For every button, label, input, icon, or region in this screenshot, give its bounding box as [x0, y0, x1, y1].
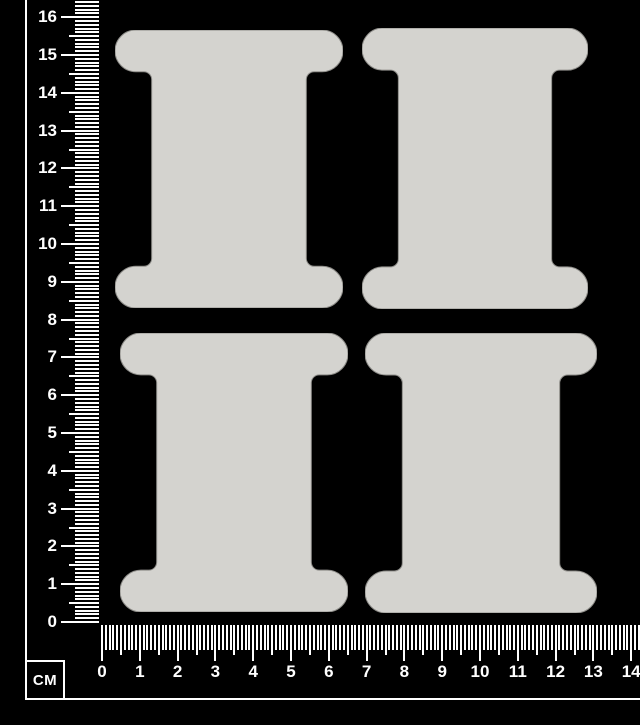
horizontal-ruler-tick	[328, 625, 330, 661]
horizontal-ruler-tick	[400, 625, 402, 650]
horizontal-ruler-tick	[128, 625, 130, 650]
horizontal-ruler-tick	[490, 625, 492, 650]
vertical-ruler-tick	[61, 583, 99, 585]
vertical-ruler-tick	[75, 496, 99, 498]
vertical-ruler-tick	[75, 504, 99, 506]
vertical-ruler-tick	[69, 602, 99, 604]
horizontal-ruler-tick	[320, 625, 322, 650]
horizontal-ruler-tick	[558, 625, 560, 650]
vertical-ruler-number: 15	[26, 45, 57, 65]
vertical-ruler-tick	[75, 137, 99, 139]
vertical-ruler-tick	[75, 141, 99, 143]
vertical-ruler-tick	[75, 273, 99, 275]
vertical-ruler-tick	[75, 81, 99, 83]
vertical-ruler-tick	[75, 266, 99, 268]
horizontal-ruler-tick	[256, 625, 258, 650]
spool-top-left	[115, 30, 343, 308]
frame-bottom-line	[25, 698, 640, 700]
vertical-ruler-tick	[75, 424, 99, 426]
horizontal-ruler-tick	[373, 625, 375, 650]
horizontal-ruler-tick	[585, 625, 587, 650]
vertical-ruler-tick	[75, 387, 99, 389]
vertical-ruler-tick	[75, 561, 99, 563]
vertical-ruler-tick	[75, 613, 99, 615]
vertical-ruler-tick	[75, 115, 99, 117]
vertical-ruler-tick	[75, 341, 99, 343]
vertical-ruler-number: 0	[26, 612, 57, 632]
horizontal-ruler-tick	[623, 625, 625, 650]
vertical-ruler-tick	[75, 122, 99, 124]
vertical-ruler-tick	[75, 557, 99, 559]
vertical-ruler-tick	[75, 9, 99, 11]
vertical-ruler-number: 3	[26, 499, 57, 519]
horizontal-ruler-tick	[245, 625, 247, 650]
horizontal-ruler-tick	[271, 625, 273, 655]
horizontal-ruler-tick	[475, 625, 477, 650]
horizontal-ruler-tick	[188, 625, 190, 650]
vertical-ruler-tick	[75, 591, 99, 593]
vertical-ruler-tick	[75, 553, 99, 555]
vertical-ruler-tick	[75, 296, 99, 298]
vertical-ruler-tick	[75, 251, 99, 253]
vertical-ruler-tick	[69, 186, 99, 188]
vertical-ruler-number: 4	[26, 461, 57, 481]
vertical-ruler-tick	[75, 285, 99, 287]
horizontal-ruler-tick	[143, 625, 145, 650]
horizontal-ruler-tick	[101, 625, 103, 661]
vertical-ruler-tick	[61, 205, 99, 207]
horizontal-ruler-tick	[415, 625, 417, 650]
vertical-ruler-tick	[69, 527, 99, 529]
vertical-ruler-tick	[75, 542, 99, 544]
horizontal-ruler-tick	[517, 625, 519, 661]
vertical-ruler-tick	[75, 417, 99, 419]
vertical-ruler-tick	[75, 62, 99, 64]
vertical-ruler-tick	[75, 99, 99, 101]
horizontal-ruler-tick	[608, 625, 610, 650]
horizontal-ruler-tick	[456, 625, 458, 650]
vertical-ruler-tick	[75, 466, 99, 468]
vertical-ruler-tick	[61, 243, 99, 245]
horizontal-ruler-tick	[551, 625, 553, 650]
horizontal-ruler-tick	[214, 625, 216, 661]
vertical-ruler-tick	[75, 572, 99, 574]
horizontal-ruler-tick	[169, 625, 171, 650]
vertical-ruler-tick	[61, 281, 99, 283]
horizontal-ruler-tick	[369, 625, 371, 650]
spool-silhouette	[362, 28, 588, 309]
horizontal-ruler-tick	[279, 625, 281, 650]
vertical-ruler-tick	[75, 190, 99, 192]
vertical-ruler-tick	[75, 549, 99, 551]
vertical-ruler-tick	[75, 88, 99, 90]
horizontal-ruler-tick	[589, 625, 591, 650]
vertical-ruler-tick	[75, 390, 99, 392]
vertical-ruler-tick	[69, 489, 99, 491]
horizontal-ruler-tick	[577, 625, 579, 650]
horizontal-ruler-tick	[422, 625, 424, 655]
horizontal-ruler-tick	[555, 625, 557, 661]
horizontal-ruler-tick	[332, 625, 334, 650]
vertical-ruler-tick	[75, 254, 99, 256]
horizontal-ruler-tick	[173, 625, 175, 650]
vertical-ruler-tick	[69, 375, 99, 377]
vertical-ruler-tick	[75, 345, 99, 347]
vertical-ruler-tick	[75, 107, 99, 109]
vertical-ruler-tick	[61, 508, 99, 510]
horizontal-ruler-tick	[581, 625, 583, 650]
vertical-ruler-number: 13	[26, 121, 57, 141]
vertical-ruler-tick	[75, 334, 99, 336]
horizontal-ruler-tick	[460, 625, 462, 655]
horizontal-ruler-number: 7	[351, 662, 383, 682]
spool-top-right	[362, 28, 588, 309]
horizontal-ruler-tick	[230, 625, 232, 650]
horizontal-ruler-tick	[630, 625, 632, 661]
vertical-ruler-tick	[75, 84, 99, 86]
vertical-ruler-tick	[75, 209, 99, 211]
vertical-ruler-tick	[75, 322, 99, 324]
horizontal-ruler-tick	[351, 625, 353, 650]
vertical-ruler-tick	[75, 383, 99, 385]
horizontal-ruler-tick	[184, 625, 186, 650]
vertical-ruler-tick	[75, 247, 99, 249]
vertical-ruler-tick	[75, 77, 99, 79]
spool-silhouette	[365, 333, 597, 613]
horizontal-ruler-tick	[570, 625, 572, 650]
vertical-ruler-tick	[75, 349, 99, 351]
horizontal-ruler-tick	[611, 625, 613, 655]
vertical-ruler-tick	[75, 304, 99, 306]
horizontal-ruler-tick	[506, 625, 508, 650]
unit-label-box: CM	[25, 660, 65, 700]
horizontal-ruler-tick	[385, 625, 387, 655]
vertical-ruler-tick	[75, 198, 99, 200]
horizontal-ruler-tick	[487, 625, 489, 650]
unit-label: CM	[33, 672, 57, 689]
horizontal-ruler-tick	[139, 625, 141, 661]
horizontal-ruler-number: 8	[388, 662, 420, 682]
horizontal-ruler-tick	[335, 625, 337, 650]
horizontal-ruler-number: 12	[540, 662, 572, 682]
horizontal-ruler-tick	[313, 625, 315, 650]
vertical-ruler-tick	[75, 175, 99, 177]
vertical-ruler-tick	[75, 406, 99, 408]
vertical-ruler-tick	[75, 69, 99, 71]
horizontal-ruler-tick	[468, 625, 470, 650]
vertical-ruler-tick	[75, 398, 99, 400]
horizontal-ruler-tick	[540, 625, 542, 650]
horizontal-ruler-tick	[196, 625, 198, 655]
vertical-ruler-number: 16	[26, 7, 57, 27]
vertical-ruler-tick	[75, 277, 99, 279]
horizontal-ruler-tick	[207, 625, 209, 650]
horizontal-ruler-tick	[604, 625, 606, 650]
horizontal-ruler-number: 6	[313, 662, 345, 682]
horizontal-ruler-tick	[445, 625, 447, 650]
vertical-ruler-tick	[69, 413, 99, 415]
horizontal-ruler-tick	[362, 625, 364, 650]
vertical-ruler-tick	[75, 12, 99, 14]
horizontal-ruler-tick	[596, 625, 598, 650]
horizontal-ruler-tick	[411, 625, 413, 650]
horizontal-ruler-tick	[513, 625, 515, 650]
horizontal-ruler-number: 5	[275, 662, 307, 682]
horizontal-ruler-tick	[528, 625, 530, 650]
horizontal-ruler-number: 13	[577, 662, 609, 682]
vertical-ruler-tick	[75, 201, 99, 203]
vertical-ruler-tick	[75, 50, 99, 52]
vertical-ruler-tick	[75, 610, 99, 612]
vertical-ruler-tick	[75, 462, 99, 464]
horizontal-ruler-tick	[592, 625, 594, 661]
vertical-ruler-tick	[75, 511, 99, 513]
vertical-ruler-tick	[75, 530, 99, 532]
horizontal-ruler-tick	[532, 625, 534, 650]
vertical-ruler-tick	[75, 217, 99, 219]
horizontal-ruler-tick	[222, 625, 224, 650]
vertical-ruler-tick	[61, 470, 99, 472]
horizontal-ruler-tick	[464, 625, 466, 650]
horizontal-ruler-number: 10	[464, 662, 496, 682]
horizontal-ruler-tick	[366, 625, 368, 661]
vertical-ruler-tick	[61, 319, 99, 321]
horizontal-ruler-tick	[358, 625, 360, 650]
vertical-ruler-tick	[75, 194, 99, 196]
vertical-ruler-tick	[75, 372, 99, 374]
vertical-ruler-tick	[75, 587, 99, 589]
vertical-ruler-number: 11	[26, 196, 57, 216]
vertical-ruler-tick	[75, 379, 99, 381]
horizontal-ruler-tick	[430, 625, 432, 650]
horizontal-ruler-tick	[146, 625, 148, 650]
vertical-ruler-tick	[61, 394, 99, 396]
vertical-ruler-number: 9	[26, 272, 57, 292]
vertical-ruler-number: 12	[26, 158, 57, 178]
horizontal-ruler-tick	[449, 625, 451, 650]
horizontal-ruler-tick	[120, 625, 122, 655]
horizontal-ruler-number: 3	[199, 662, 231, 682]
horizontal-ruler-tick	[600, 625, 602, 650]
vertical-ruler-tick	[75, 579, 99, 581]
spool-silhouette	[120, 333, 348, 612]
vertical-ruler-tick	[75, 239, 99, 241]
horizontal-ruler-tick	[396, 625, 398, 650]
horizontal-ruler-tick	[521, 625, 523, 650]
vertical-ruler-tick	[75, 232, 99, 234]
vertical-ruler-tick	[75, 330, 99, 332]
vertical-ruler-tick	[75, 606, 99, 608]
horizontal-ruler-tick	[294, 625, 296, 650]
horizontal-ruler-tick	[203, 625, 205, 650]
vertical-ruler-tick	[75, 421, 99, 423]
vertical-ruler-tick	[61, 432, 99, 434]
vertical-ruler-tick	[75, 353, 99, 355]
vertical-ruler-tick	[61, 167, 99, 169]
horizontal-ruler-tick	[566, 625, 568, 650]
horizontal-ruler-tick	[135, 625, 137, 650]
vertical-ruler-tick	[75, 24, 99, 26]
horizontal-ruler-number: 14	[615, 662, 640, 682]
vertical-ruler-tick	[75, 493, 99, 495]
vertical-ruler-number: 5	[26, 423, 57, 443]
vertical-ruler-tick	[69, 262, 99, 264]
vertical-ruler-number: 2	[26, 536, 57, 556]
horizontal-ruler-tick	[317, 625, 319, 650]
vertical-ruler-tick	[75, 485, 99, 487]
vertical-ruler-tick	[75, 568, 99, 570]
vertical-ruler-tick	[75, 65, 99, 67]
horizontal-ruler-tick	[124, 625, 126, 650]
vertical-ruler-tick	[75, 28, 99, 30]
vertical-ruler-tick	[69, 35, 99, 37]
vertical-ruler-tick	[75, 118, 99, 120]
vertical-ruler-tick	[75, 595, 99, 597]
horizontal-ruler-tick	[199, 625, 201, 650]
horizontal-ruler-tick	[634, 625, 636, 650]
horizontal-ruler-tick	[109, 625, 111, 650]
horizontal-ruler-number: 1	[124, 662, 156, 682]
vertical-ruler-tick	[61, 54, 99, 56]
horizontal-ruler-tick	[638, 625, 640, 650]
horizontal-ruler-tick	[426, 625, 428, 650]
vertical-ruler-tick	[75, 39, 99, 41]
horizontal-ruler-tick	[419, 625, 421, 650]
horizontal-ruler-tick	[615, 625, 617, 650]
horizontal-ruler-number: 0	[86, 662, 118, 682]
vertical-ruler-tick	[75, 477, 99, 479]
vertical-ruler-tick	[75, 133, 99, 135]
vertical-ruler-tick	[75, 213, 99, 215]
vertical-ruler-number: 14	[26, 83, 57, 103]
horizontal-ruler-tick	[377, 625, 379, 650]
horizontal-ruler-tick	[248, 625, 250, 650]
vertical-ruler-tick	[75, 315, 99, 317]
vertical-ruler-number: 7	[26, 347, 57, 367]
horizontal-ruler-tick	[233, 625, 235, 655]
horizontal-ruler-tick	[286, 625, 288, 650]
horizontal-ruler-tick	[267, 625, 269, 650]
horizontal-ruler-tick	[483, 625, 485, 650]
horizontal-ruler-tick	[131, 625, 133, 650]
vertical-ruler-tick	[75, 534, 99, 536]
horizontal-ruler-tick	[275, 625, 277, 650]
horizontal-ruler-tick	[381, 625, 383, 650]
horizontal-ruler-tick	[218, 625, 220, 650]
horizontal-ruler-number: 4	[237, 662, 269, 682]
vertical-ruler-tick	[75, 459, 99, 461]
horizontal-ruler-tick	[403, 625, 405, 661]
horizontal-ruler-tick	[502, 625, 504, 650]
vertical-ruler-tick	[75, 96, 99, 98]
vertical-ruler-tick	[75, 20, 99, 22]
vertical-ruler-tick	[75, 515, 99, 517]
vertical-ruler-tick	[75, 235, 99, 237]
horizontal-ruler-tick	[298, 625, 300, 650]
vertical-ruler-tick	[75, 519, 99, 521]
horizontal-ruler-tick	[112, 625, 114, 650]
vertical-ruler-tick	[75, 538, 99, 540]
vertical-ruler-tick	[69, 111, 99, 113]
vertical-ruler-tick	[75, 164, 99, 166]
horizontal-ruler-tick	[434, 625, 436, 650]
horizontal-ruler-tick	[441, 625, 443, 661]
horizontal-ruler-tick	[282, 625, 284, 650]
vertical-ruler-tick	[61, 545, 99, 547]
vertical-ruler-tick	[75, 288, 99, 290]
horizontal-ruler-number: 9	[426, 662, 458, 682]
horizontal-ruler-tick	[241, 625, 243, 650]
horizontal-ruler-tick	[471, 625, 473, 650]
vertical-ruler-tick	[75, 103, 99, 105]
vertical-ruler-tick	[75, 409, 99, 411]
vertical-ruler-tick	[75, 443, 99, 445]
horizontal-ruler-tick	[388, 625, 390, 650]
vertical-ruler-tick	[75, 311, 99, 313]
vertical-ruler-tick	[75, 368, 99, 370]
vertical-ruler-tick	[69, 451, 99, 453]
horizontal-ruler-tick	[165, 625, 167, 650]
horizontal-ruler-tick	[301, 625, 303, 650]
vertical-ruler-tick	[75, 360, 99, 362]
vertical-ruler-tick	[75, 258, 99, 260]
vertical-ruler-tick	[61, 621, 99, 623]
horizontal-ruler-tick	[574, 625, 576, 655]
vertical-ruler-tick	[69, 564, 99, 566]
horizontal-ruler-tick	[524, 625, 526, 650]
vertical-ruler-tick	[75, 447, 99, 449]
horizontal-ruler-tick	[392, 625, 394, 650]
vertical-ruler-tick	[75, 481, 99, 483]
horizontal-ruler-tick	[347, 625, 349, 655]
vertical-ruler-tick	[69, 224, 99, 226]
vertical-ruler-tick	[75, 179, 99, 181]
vertical-ruler-tick	[69, 73, 99, 75]
horizontal-ruler-tick	[260, 625, 262, 650]
vertical-ruler-tick	[61, 130, 99, 132]
vertical-ruler-number: 1	[26, 574, 57, 594]
vertical-ruler-tick	[75, 183, 99, 185]
vertical-ruler-tick	[61, 16, 99, 18]
vertical-ruler-tick	[75, 145, 99, 147]
horizontal-ruler-tick	[180, 625, 182, 650]
vertical-ruler-tick	[75, 58, 99, 60]
vertical-ruler-tick	[75, 43, 99, 45]
horizontal-ruler-tick	[453, 625, 455, 650]
vertical-ruler-tick	[75, 292, 99, 294]
horizontal-ruler-tick	[154, 625, 156, 650]
vertical-ruler-number: 8	[26, 310, 57, 330]
vertical-ruler-tick	[75, 270, 99, 272]
vertical-ruler-tick	[75, 31, 99, 33]
vertical-ruler-tick	[75, 46, 99, 48]
horizontal-ruler-tick	[252, 625, 254, 661]
horizontal-ruler-tick	[498, 625, 500, 655]
vertical-ruler-tick	[75, 440, 99, 442]
horizontal-ruler-tick	[354, 625, 356, 650]
horizontal-ruler-tick	[150, 625, 152, 650]
spool-bottom-right	[365, 333, 597, 613]
horizontal-ruler-number: 2	[162, 662, 194, 682]
horizontal-ruler-tick	[509, 625, 511, 650]
vertical-ruler-tick	[75, 152, 99, 154]
spool-silhouette	[115, 30, 343, 308]
vertical-ruler-tick	[61, 92, 99, 94]
horizontal-ruler-tick	[105, 625, 107, 650]
horizontal-ruler-tick	[290, 625, 292, 661]
vertical-ruler-tick	[75, 576, 99, 578]
horizontal-ruler-tick	[626, 625, 628, 650]
